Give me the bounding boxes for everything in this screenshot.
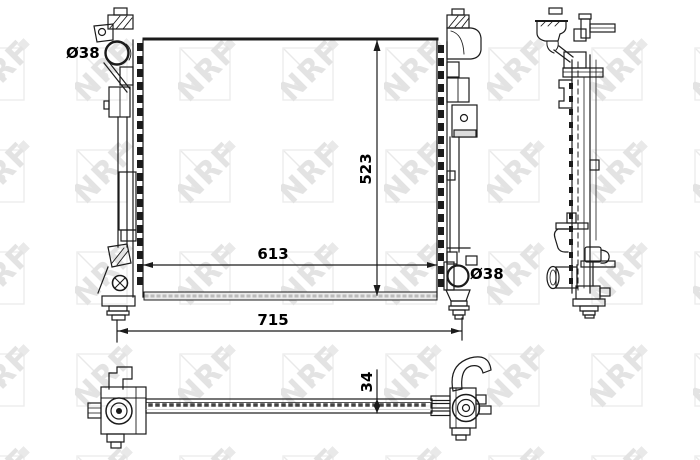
radiator-bottom-view [88, 357, 491, 448]
radiator-side-view [536, 8, 615, 318]
radiator-technical-drawing: NRF NRF NRF [0, 0, 700, 460]
label-core-thickness: 34 [359, 360, 375, 404]
front-left-tank [94, 8, 136, 320]
dim-core-width [143, 262, 437, 268]
label-outlet-diameter: Ø38 [470, 266, 504, 282]
drawing-canvas [0, 0, 700, 460]
label-overall-width: 715 [251, 312, 295, 328]
label-core-width: 613 [251, 246, 295, 262]
label-inlet-diameter: Ø38 [66, 45, 100, 61]
radiator-front-view [94, 8, 481, 342]
label-core-height: 523 [358, 147, 374, 191]
